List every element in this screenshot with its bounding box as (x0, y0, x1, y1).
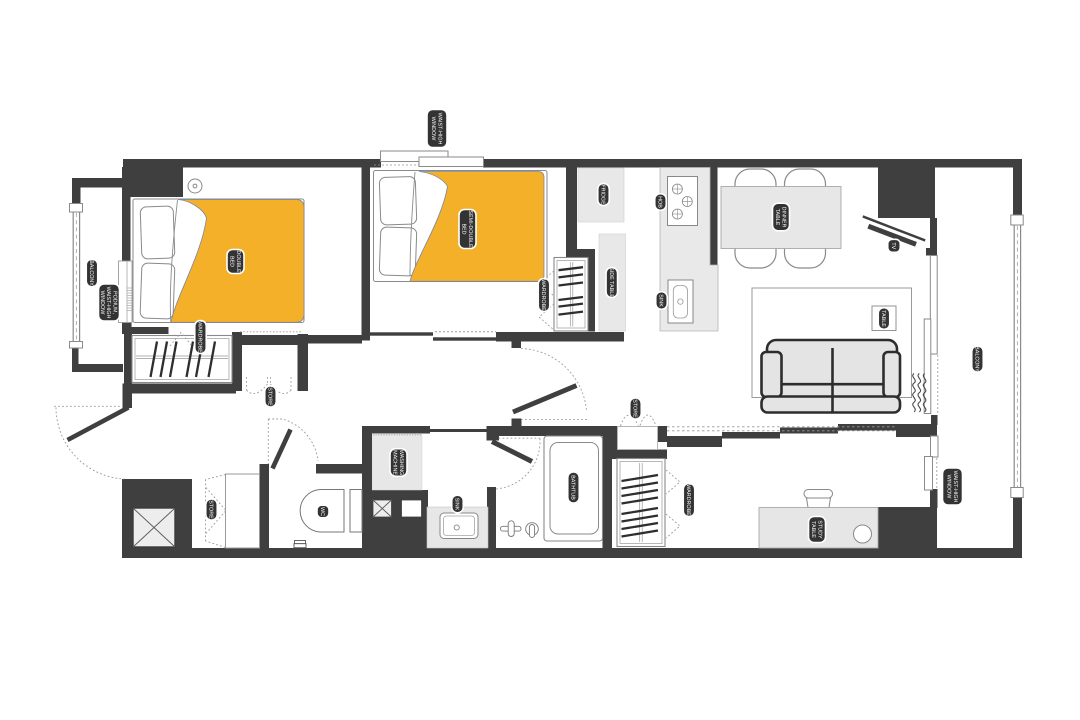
svg-text:STORE: STORE (632, 399, 638, 418)
svg-text:TV: TV (890, 242, 896, 249)
svg-text:BATHTUB: BATHTUB (570, 475, 576, 500)
svg-text:WINDOW: WINDOW (946, 475, 952, 500)
svg-text:FRIDGE: FRIDGE (600, 184, 606, 205)
svg-text:BED: BED (461, 223, 467, 234)
svg-text:WAIST-HIGH: WAIST-HIGH (436, 113, 442, 145)
svg-text:WARDROBE: WARDROBE (197, 321, 203, 353)
svg-text:STUDY: STUDY (816, 520, 822, 539)
svg-text:WINDOW: WINDOW (430, 117, 436, 142)
svg-text:BALCONY: BALCONY (974, 346, 980, 372)
svg-text:WASHING: WASHING (398, 450, 404, 476)
svg-text:HOB: HOB (657, 196, 663, 208)
svg-text:BALCONY: BALCONY (88, 260, 94, 286)
svg-text:WINDOW: WINDOW (99, 291, 105, 316)
svg-text:TABLE: TABLE (880, 310, 886, 327)
svg-text:WARDROBE: WARDROBE (540, 279, 546, 311)
svg-text:SIDE TABLE: SIDE TABLE (608, 267, 614, 298)
svg-text:WAIST-HIGH: WAIST-HIGH (952, 471, 958, 503)
svg-text:PODIUM,: PODIUM, (111, 291, 117, 315)
svg-text:DOUBLE: DOUBLE (235, 250, 241, 273)
svg-text:STORE: STORE (267, 387, 273, 406)
svg-text:WARDROBE: WARDROBE (685, 484, 691, 516)
svg-text:SEMI-DOUBLE: SEMI-DOUBLE (467, 210, 473, 248)
svg-text:TABLE: TABLE (810, 521, 816, 538)
svg-text:WC: WC (319, 507, 325, 516)
svg-text:STORE: STORE (208, 500, 214, 519)
svg-text:DINNER: DINNER (780, 207, 786, 228)
svg-text:SINK: SINK (658, 294, 664, 307)
svg-text:TABLE: TABLE (774, 209, 780, 226)
svg-text:SINK: SINK (454, 498, 460, 511)
svg-text:WAIST-HIGH: WAIST-HIGH (105, 287, 111, 319)
svg-text:MACHINE: MACHINE (392, 450, 398, 475)
svg-text:BED: BED (229, 256, 235, 267)
